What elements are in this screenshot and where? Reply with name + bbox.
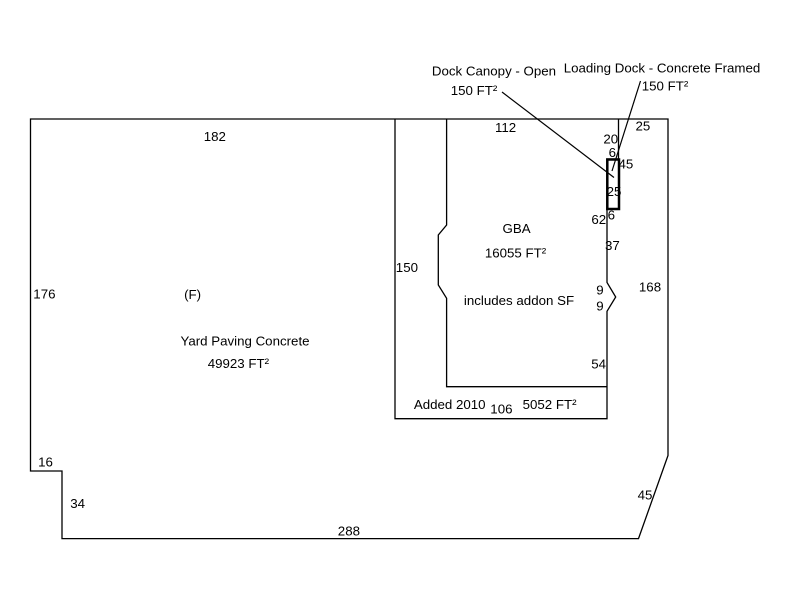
svg-text:45: 45 bbox=[638, 488, 653, 503]
svg-text:6: 6 bbox=[608, 208, 615, 223]
svg-text:112: 112 bbox=[495, 120, 516, 135]
svg-text:168: 168 bbox=[639, 279, 661, 294]
svg-text:34: 34 bbox=[70, 496, 85, 511]
svg-text:5052 FT²: 5052 FT² bbox=[523, 397, 578, 412]
svg-text:25: 25 bbox=[636, 118, 651, 133]
svg-text:150 FT²: 150 FT² bbox=[451, 83, 498, 98]
svg-text:Loading Dock - Concrete Framed: Loading Dock - Concrete Framed bbox=[564, 61, 761, 76]
svg-text:176: 176 bbox=[33, 286, 55, 301]
svg-text:9: 9 bbox=[596, 283, 603, 298]
svg-text:106: 106 bbox=[490, 401, 512, 416]
svg-text:(F): (F) bbox=[184, 287, 201, 302]
svg-text:62: 62 bbox=[591, 212, 606, 227]
svg-text:includes addon SF: includes addon SF bbox=[464, 293, 574, 308]
svg-text:9: 9 bbox=[596, 299, 603, 314]
svg-text:54: 54 bbox=[591, 356, 606, 371]
svg-text:49923 FT²: 49923 FT² bbox=[208, 356, 270, 371]
svg-text:6: 6 bbox=[609, 145, 616, 160]
svg-text:150: 150 bbox=[396, 260, 418, 275]
svg-text:GBA: GBA bbox=[503, 221, 531, 236]
svg-text:Dock Canopy - Open: Dock Canopy - Open bbox=[432, 63, 556, 78]
svg-text:Yard Paving Concrete: Yard Paving Concrete bbox=[180, 333, 309, 348]
svg-text:45: 45 bbox=[619, 157, 634, 172]
svg-text:25: 25 bbox=[607, 184, 622, 199]
svg-text:150 FT²: 150 FT² bbox=[642, 78, 689, 93]
svg-text:182: 182 bbox=[204, 129, 226, 144]
svg-text:37: 37 bbox=[605, 238, 620, 253]
svg-text:16055 FT²: 16055 FT² bbox=[485, 246, 547, 261]
svg-text:Added 2010: Added 2010 bbox=[414, 397, 486, 412]
svg-text:16: 16 bbox=[38, 455, 53, 470]
svg-text:288: 288 bbox=[338, 524, 360, 539]
